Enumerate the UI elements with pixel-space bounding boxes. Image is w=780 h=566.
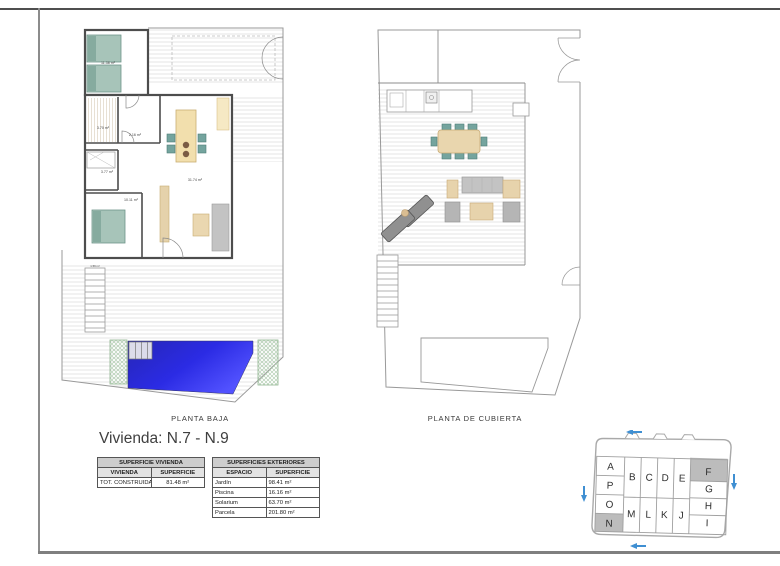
table-superficies-exteriores: SUPERFICIES EXTERIORES ESPACIO SUPERFICI… [212, 457, 320, 518]
sheet-border-top [0, 8, 780, 10]
room-label-bath1: 3.70 m² [97, 126, 110, 130]
cell-E: E [679, 473, 686, 484]
cell-G: G [705, 484, 713, 495]
cell-H: H [705, 501, 713, 512]
planta-baja-caption: PLANTA BAJA [120, 414, 280, 423]
room-label-store: 1.59 m² [90, 264, 100, 268]
coffee-table [193, 214, 209, 236]
table-title: SUPERFICIE VIVIENDA [98, 458, 205, 468]
pool-outline [421, 338, 548, 392]
table-row: Piscina 16.16 m² [213, 488, 320, 498]
pool-steps [129, 342, 152, 359]
shower [87, 152, 115, 168]
tv-unit [160, 186, 169, 242]
row-value: 81.48 m² [151, 478, 205, 488]
planta-cubierta-caption: PLANTA DE CUBIERTA [390, 414, 560, 423]
table-row: Solarium 63.70 m² [213, 498, 320, 508]
row-label: Parcela [213, 508, 267, 518]
table-title: SUPERFICIES EXTERIORES [213, 458, 320, 468]
planta-baja-drawing: 11.38 m² 3.70 m² 2.16 m² 3.77 m² 10.11 m… [60, 12, 285, 404]
bath1-floor [86, 98, 117, 142]
cell-O: O [605, 500, 613, 511]
solarium-deck [378, 88, 525, 265]
hedge-right [258, 340, 278, 385]
room-label-bedroom1: 11.38 m² [101, 61, 116, 65]
row-label: TOT. CONSTRUIDA [98, 478, 152, 488]
bed-icon [87, 35, 121, 62]
cell-D: D [661, 473, 669, 484]
cell-L: L [645, 510, 651, 521]
terrace-deck-top [148, 28, 283, 85]
table-row: Parcela 201.80 m² [213, 508, 320, 518]
cell-A: A [607, 462, 614, 473]
column-header: SUPERFICIE [266, 468, 320, 478]
row-label: Solarium [213, 498, 267, 508]
cell-M: M [627, 509, 636, 520]
bed-icon [87, 65, 121, 92]
stairs [85, 268, 105, 332]
terrace-deck-right [232, 95, 283, 162]
planta-cubierta-drawing [372, 20, 587, 405]
table-row: Jardín 98.41 m² [213, 478, 320, 488]
column-header: ESPACIO [213, 468, 267, 478]
door-swings [558, 38, 580, 285]
drawing-sheet: 11.38 m² 3.70 m² 2.16 m² 3.77 m² 10.11 m… [0, 0, 780, 566]
room-label-bath2: 3.77 m² [101, 170, 114, 174]
arrow-left-icon [581, 486, 587, 502]
row-value: 98.41 m² [266, 478, 320, 488]
room-label-hall: 2.16 m² [129, 133, 142, 137]
cell-B: B [629, 472, 636, 483]
bed-icon [92, 210, 125, 243]
room-label-living: 31.74 m² [188, 178, 203, 182]
site-key-map: A P O N B C D E M L K J F G H I [580, 430, 762, 554]
arrow-bottom-icon [630, 543, 646, 549]
kitchen-island [176, 110, 196, 162]
sheet-title: Vivienda: N.7 - N.9 [99, 430, 229, 448]
cell-J: J [679, 511, 684, 522]
cabinet [217, 98, 229, 130]
row-value: 63.70 m² [266, 498, 320, 508]
row-value: 16.16 m² [266, 488, 320, 498]
column-header: VIVIENDA [98, 468, 152, 478]
cell-C: C [645, 473, 653, 484]
cell-F: F [705, 467, 711, 478]
stairs [377, 255, 398, 327]
column-header: SUPERFICIE [151, 468, 205, 478]
summer-kitchen [387, 90, 472, 112]
cell-N: N [605, 519, 613, 530]
cell-K: K [661, 510, 668, 521]
cell-P: P [607, 481, 614, 492]
table-row: TOT. CONSTRUIDA 81.48 m² [98, 478, 205, 488]
hedge-left [110, 340, 127, 384]
row-value: 201.80 m² [266, 508, 320, 518]
row-label: Piscina [213, 488, 267, 498]
planter-box [513, 103, 529, 116]
sofa [212, 204, 229, 251]
table-superficie-vivienda: SUPERFICIE VIVIENDA VIVIENDA SUPERFICIE … [97, 457, 205, 488]
sheet-border-left [38, 8, 40, 554]
row-label: Jardín [213, 478, 267, 488]
cell-I: I [706, 518, 709, 529]
arrow-right-icon [731, 474, 737, 490]
room-label-bedroom2: 10.11 m² [124, 198, 139, 202]
